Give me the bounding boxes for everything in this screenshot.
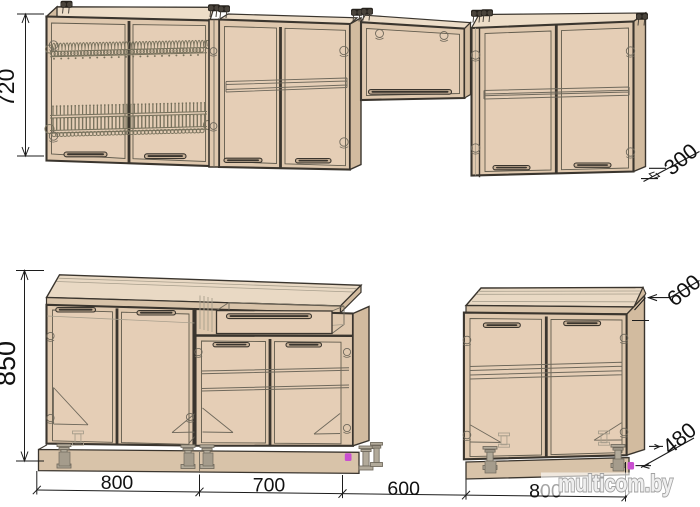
svg-text:700: 700 [253,475,286,497]
svg-text:600: 600 [387,478,420,500]
svg-text:800: 800 [101,472,134,494]
svg-text:850: 850 [0,341,21,386]
svg-text:multicom.by: multicom.by [558,471,673,498]
svg-text:720: 720 [0,69,19,107]
